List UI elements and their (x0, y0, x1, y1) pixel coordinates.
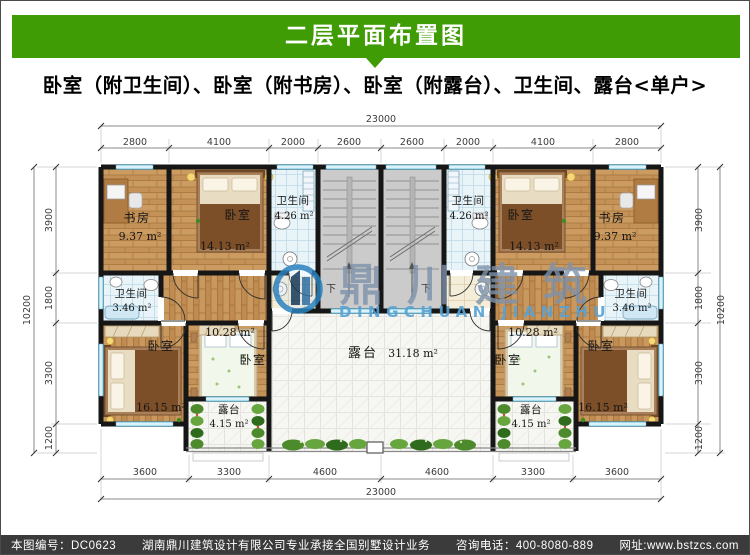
title-bar: 二层平面布置图 (12, 15, 740, 58)
dim-left-total: 10200 (22, 295, 33, 325)
dim-right-seg: 1800 (694, 286, 705, 310)
terrace-step-left (193, 453, 263, 461)
dim-left-seg: 1800 (44, 286, 55, 310)
subtitle: 卧室（附卫生间）、卧室（附书房）、卧室（附露台）、卫生间、露台<单户> (1, 69, 749, 98)
dim-bottom-seg: 3600 (133, 467, 157, 478)
terrace-small-left-area: 4.15 m² (210, 419, 249, 430)
terrace-main-name: 露台 (348, 346, 378, 361)
terrace-step-right (499, 453, 569, 461)
dim-right-total: 10200 (716, 295, 727, 325)
watermark-en-text: DINGCHUAN JIANZHU (339, 303, 611, 321)
terrace-small-right-area: 4.15 m² (512, 419, 551, 430)
hall-left-floor (161, 273, 269, 323)
dim-top-seg: 2800 (123, 137, 147, 148)
study-left-name: 书房 (123, 210, 150, 225)
bedroom-mid-right-name: 卧室 (494, 352, 521, 367)
page-title: 二层平面布置图 (285, 15, 467, 58)
terrace-small-right-name: 露台 (520, 403, 542, 416)
study-right-name: 书房 (598, 210, 625, 225)
dim-top-seg: 2600 (337, 137, 361, 148)
stair-down-label-left: 下 (326, 284, 336, 295)
footer-drawing-no: 本图编号：DC0623 (11, 537, 116, 553)
terrace-column (367, 442, 383, 453)
bedroom-corner-left-area: 16.15 m² (136, 401, 186, 414)
stair-left-stringer (347, 177, 352, 273)
dim-right-seg: 3300 (694, 361, 705, 385)
study-right-area: 9.37 m² (594, 230, 637, 243)
terrace-main-floor (269, 311, 493, 451)
terrace-small-left-name: 露台 (218, 403, 240, 416)
dim-top-total: 23000 (366, 114, 396, 125)
dim-bottom-seg: 3300 (521, 467, 545, 478)
bedroom-corner-left-name: 卧室 (147, 338, 174, 353)
bedroom-top-right-area: 14.13 m² (509, 240, 559, 253)
bedroom-top-left-name: 卧室 (224, 207, 251, 222)
terrace-main-area: 31.18 m² (388, 347, 438, 360)
footer-phone: 咨询电话：400-8080-889 (456, 537, 594, 553)
bath-top-left-area: 4.26 m² (275, 211, 314, 222)
dim-top-seg: 2600 (400, 137, 424, 148)
bedroom-mid-left-name: 卧室 (239, 352, 266, 367)
dim-left-seg: 3300 (44, 361, 55, 385)
bedroom-corner-right-name: 卧室 (587, 338, 614, 353)
dim-top-seg: 2000 (281, 137, 305, 148)
study-left-area: 9.37 m² (119, 230, 162, 243)
dim-right-seg: 3900 (694, 208, 705, 232)
footer-bar: 本图编号：DC0623 湖南鼎川建筑设计有限公司专业承接全国别墅设计业务 咨询电… (1, 535, 749, 554)
footer-company: 湖南鼎川建筑设计有限公司专业承接全国别墅设计业务 (142, 537, 430, 553)
bath-top-left-name: 卫生间 (277, 194, 310, 207)
bath-mid-right-name: 卫生间 (615, 287, 648, 300)
dim-bottom-seg: 4600 (313, 467, 337, 478)
dim-bottom-seg: 3600 (605, 467, 629, 478)
bedroom-top-left-area: 14.13 m² (200, 240, 250, 253)
bedroom-mid-right-area: 10.28 m² (508, 326, 558, 339)
bedroom-mid-left-area: 10.28 m² (205, 326, 255, 339)
bedroom-corner-right-area: 16.15 m² (578, 401, 628, 414)
watermark-logo-icon (276, 267, 320, 311)
stair-right-stringer (410, 177, 415, 273)
dim-top-seg: 4100 (531, 137, 555, 148)
bath-mid-right-area: 3.46 m² (613, 303, 652, 314)
footer-website: 网址:www.bstzcs.com (619, 537, 739, 553)
dim-top-seg: 2800 (615, 137, 639, 148)
dim-bottom-seg: 3300 (217, 467, 241, 478)
title-pointer (366, 58, 384, 68)
bath-mid-left-area: 3.46 m² (113, 303, 152, 314)
dim-right-seg: 1200 (694, 426, 705, 450)
bedroom-top-right-name: 卧室 (507, 207, 534, 222)
dim-top-seg: 2000 (456, 137, 480, 148)
floor-plan: 23000 2800 4100 2000 2600 2600 2000 4100… (1, 109, 750, 521)
bath-mid-left-name: 卫生间 (115, 287, 148, 300)
dim-left-seg: 3900 (44, 208, 55, 232)
dim-left-seg: 1200 (44, 426, 55, 450)
bath-top-right-name: 卫生间 (452, 194, 485, 207)
page: 二层平面布置图 卧室（附卫生间）、卧室（附书房）、卧室（附露台）、卫生间、露台<… (0, 0, 750, 555)
dim-bottom-seg: 4600 (425, 467, 449, 478)
bath-top-right-area: 4.26 m² (450, 211, 489, 222)
dim-top-seg: 4100 (207, 137, 231, 148)
dim-bottom-total: 23000 (366, 487, 396, 498)
